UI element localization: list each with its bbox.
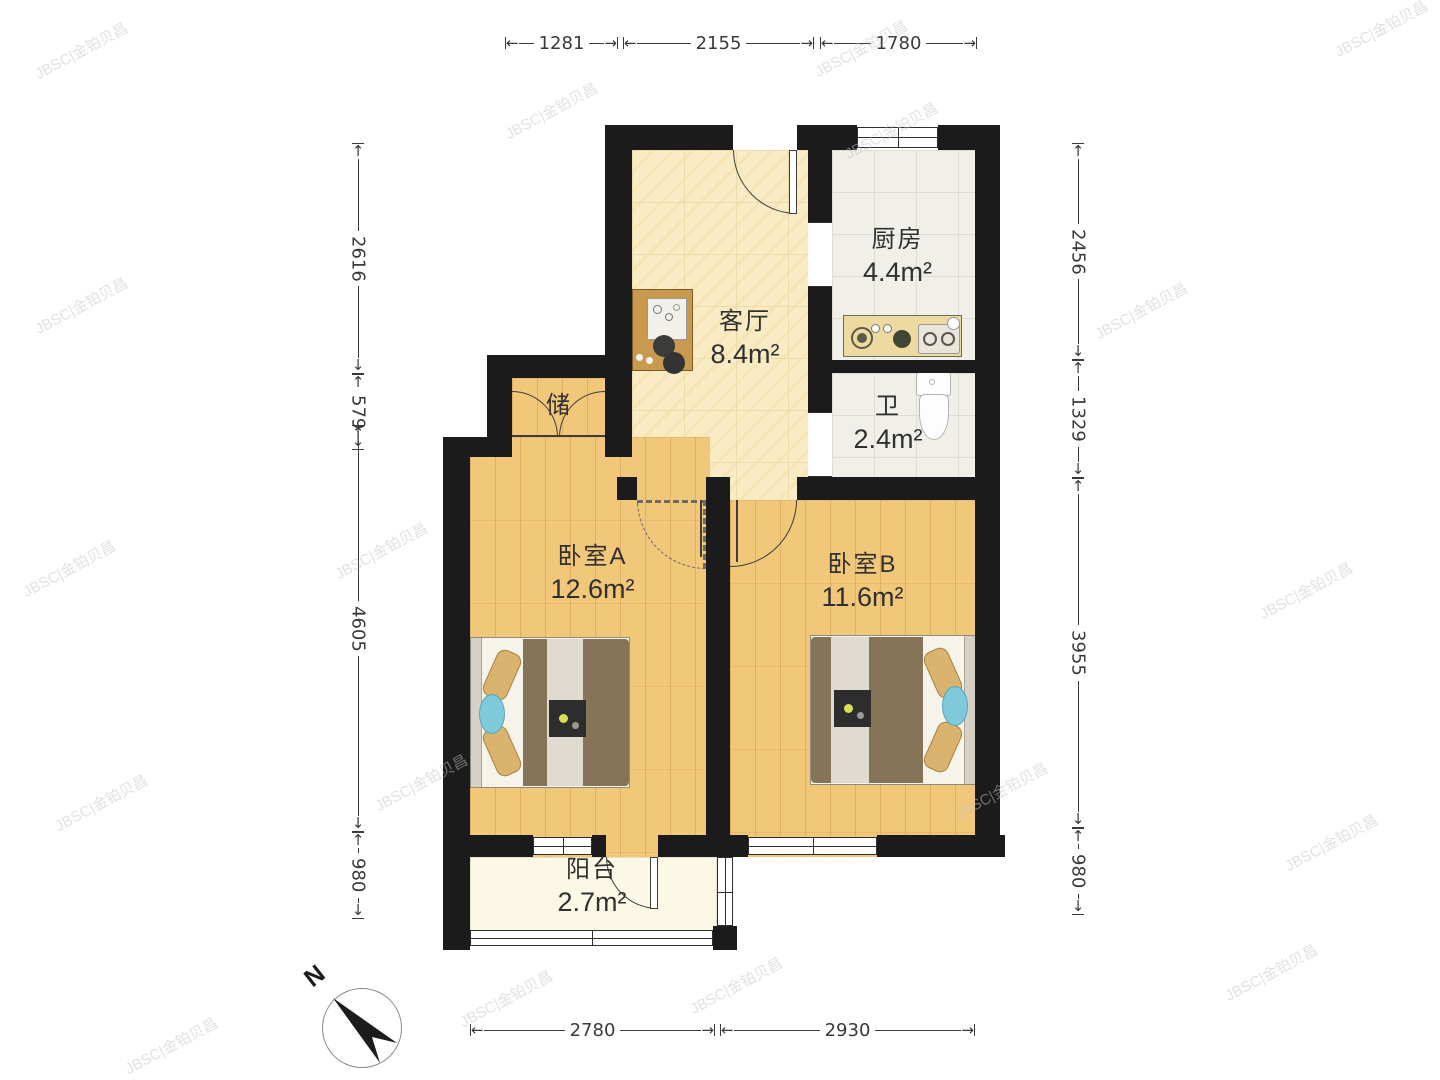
wall xyxy=(737,835,748,857)
watermark: JBSC|金铂贝昌 xyxy=(1281,809,1381,876)
watermark: JBSC|金铂贝昌 xyxy=(31,272,131,339)
burner xyxy=(941,332,955,346)
toilet-button xyxy=(929,379,935,385)
dimension-2930: ←2930→ xyxy=(720,1016,975,1044)
dimension-1329: ↑1329↓ xyxy=(1064,360,1092,478)
bed-a xyxy=(470,637,630,788)
dot xyxy=(857,712,864,719)
room-area: 2.4m² xyxy=(823,422,953,457)
room-name: 阳台 xyxy=(527,854,657,885)
wall xyxy=(877,835,1005,857)
wall xyxy=(713,926,737,950)
room-name: 卫 xyxy=(823,391,953,422)
dimension-2780: ←2780→ xyxy=(470,1016,715,1044)
watermark: JBSC|金铂贝昌 xyxy=(19,535,119,602)
watermark: JBSC|金铂贝昌 xyxy=(1091,277,1191,344)
watermark: JBSC|金铂贝昌 xyxy=(1256,557,1356,624)
wall xyxy=(443,437,512,457)
entry-door-leaf xyxy=(789,150,797,214)
pillow xyxy=(921,719,965,775)
dimension-980: ↑980↓ xyxy=(344,832,372,919)
wall xyxy=(658,835,737,857)
dot xyxy=(844,704,853,713)
wall xyxy=(605,125,733,150)
dot xyxy=(636,354,643,361)
wall xyxy=(797,477,1000,500)
room-area: 8.4m² xyxy=(672,337,818,372)
dimension-3955: ↑3955↓ xyxy=(1064,478,1092,828)
floor-plan-canvas: 客厅 8.4m² 厨房 4.4m² 卫 2.4m² 储 卧室A 12.6m² 卧… xyxy=(0,0,1440,1080)
dimension-2616: ↑2616↓ xyxy=(344,143,372,374)
dimension-2456: ↑2456↓ xyxy=(1064,143,1092,360)
room-name: 储 xyxy=(530,390,588,421)
dot xyxy=(646,357,653,364)
bathroom-label: 卫 2.4m² xyxy=(823,391,953,457)
dimension-980: ↑980↓ xyxy=(1064,828,1092,915)
bedroom-b-label: 卧室B 11.6m² xyxy=(780,549,945,615)
watermark: JBSC|金铂贝昌 xyxy=(501,77,601,144)
balcony-side-window xyxy=(717,857,733,926)
wall xyxy=(487,378,512,443)
kitchen-label: 厨房 4.4m² xyxy=(830,224,965,290)
sink-drain xyxy=(857,333,867,343)
watermark: JBSC|金铂贝昌 xyxy=(1221,939,1321,1006)
cyan-pillow xyxy=(479,694,505,734)
wall xyxy=(832,360,975,373)
bowl xyxy=(947,317,960,330)
room-name: 卧室B xyxy=(780,549,945,580)
wall xyxy=(443,835,533,857)
knob xyxy=(883,324,892,333)
room-area: 11.6m² xyxy=(780,580,945,615)
room-area: 12.6m² xyxy=(510,572,675,607)
wall xyxy=(938,125,1000,150)
wall xyxy=(706,477,730,500)
knob xyxy=(871,324,880,333)
balcony-railing-window xyxy=(470,930,713,946)
wall xyxy=(443,457,470,950)
dot xyxy=(572,722,579,729)
bedroom-b-window xyxy=(748,837,877,855)
cyan-pillow xyxy=(942,686,968,726)
burner xyxy=(923,332,937,346)
dimension-2155: ←2155→ xyxy=(623,29,814,57)
bedroom-b-door-leaf xyxy=(736,500,738,562)
room-name: 客厅 xyxy=(672,306,818,337)
wall xyxy=(487,355,605,378)
watermark: JBSC|金铂贝昌 xyxy=(121,1012,221,1079)
bedroom-a-door-leaf xyxy=(700,500,702,557)
living-room-label: 客厅 8.4m² xyxy=(672,306,818,372)
room-area: 2.7m² xyxy=(527,885,657,920)
watermark: JBSC|金铂贝昌 xyxy=(31,17,131,84)
wall xyxy=(975,150,1000,857)
room-area: 4.4m² xyxy=(830,255,965,290)
bed-b xyxy=(810,635,975,785)
wall xyxy=(706,500,730,857)
tray-item xyxy=(653,305,662,314)
plant xyxy=(893,330,911,348)
kitchen-window xyxy=(857,127,938,148)
dimension-1281: ←1281→ xyxy=(505,29,618,57)
dimension-4605: ↑4605↓ xyxy=(344,425,372,832)
storage-label: 储 xyxy=(530,390,588,421)
wall xyxy=(797,125,857,150)
watermark: JBSC|金铂贝昌 xyxy=(51,769,151,836)
watermark: JBSC|金铂贝昌 xyxy=(686,952,786,1019)
kitchen-door-opening xyxy=(808,222,832,287)
bedroom-a-window xyxy=(533,837,592,855)
wall xyxy=(808,150,832,222)
room-name: 卧室A xyxy=(510,541,675,572)
balcony-label: 阳台 2.7m² xyxy=(527,854,657,920)
dimension-579: ↑579↓ xyxy=(344,374,372,425)
bedroom-a-label: 卧室A 12.6m² xyxy=(510,541,675,607)
dot xyxy=(559,714,568,723)
watermark: JBSC|金铂贝昌 xyxy=(1331,0,1431,62)
room-name: 厨房 xyxy=(830,224,965,255)
wall xyxy=(605,150,632,457)
wall xyxy=(617,477,637,500)
kitchen-counter xyxy=(843,315,962,357)
dimension-1780: ←1780→ xyxy=(820,29,977,57)
